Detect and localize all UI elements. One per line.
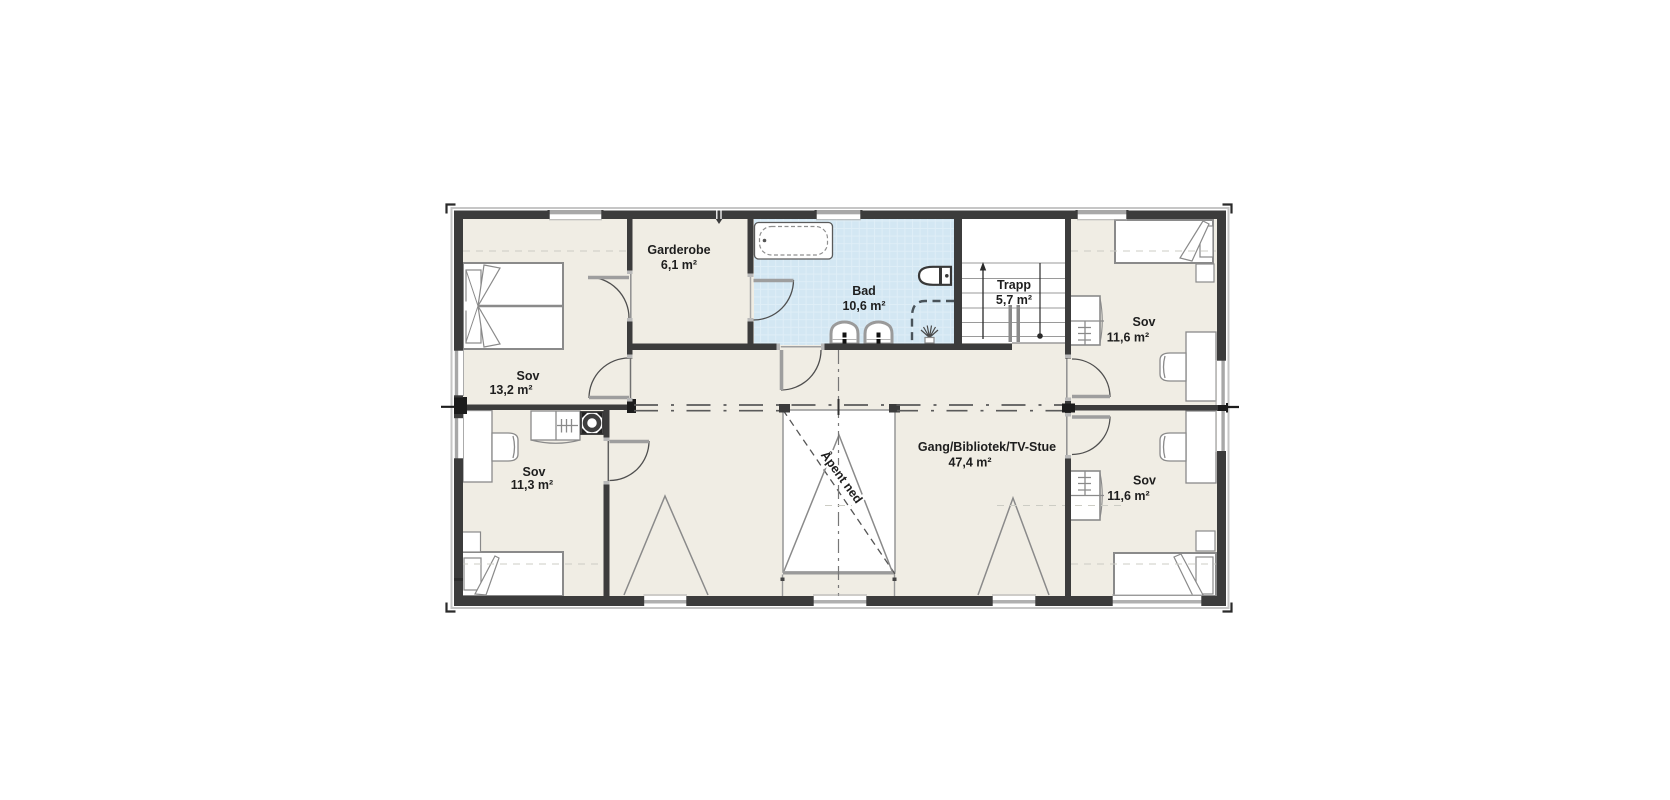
svg-text:Bad: Bad	[852, 284, 876, 298]
svg-text:11,6 m²: 11,6 m²	[1107, 489, 1149, 503]
svg-text:13,2 m²: 13,2 m²	[489, 383, 532, 397]
svg-text:Garderobe: Garderobe	[647, 243, 710, 257]
svg-text:Sov: Sov	[1133, 315, 1156, 329]
svg-text:5,7 m²: 5,7 m²	[996, 293, 1032, 307]
svg-text:47,4 m²: 47,4 m²	[948, 456, 991, 470]
svg-text:11,3 m²: 11,3 m²	[511, 478, 553, 492]
svg-text:Trapp: Trapp	[997, 278, 1031, 292]
svg-text:6,1 m²: 6,1 m²	[661, 258, 697, 272]
svg-text:Gang/Bibliotek/TV-Stue: Gang/Bibliotek/TV-Stue	[918, 440, 1056, 454]
svg-text:Sov: Sov	[1133, 474, 1156, 488]
svg-text:Sov: Sov	[517, 369, 540, 383]
svg-text:Sov: Sov	[523, 465, 546, 479]
svg-text:10,6 m²: 10,6 m²	[842, 299, 885, 313]
svg-text:11,6 m²: 11,6 m²	[1107, 331, 1149, 345]
